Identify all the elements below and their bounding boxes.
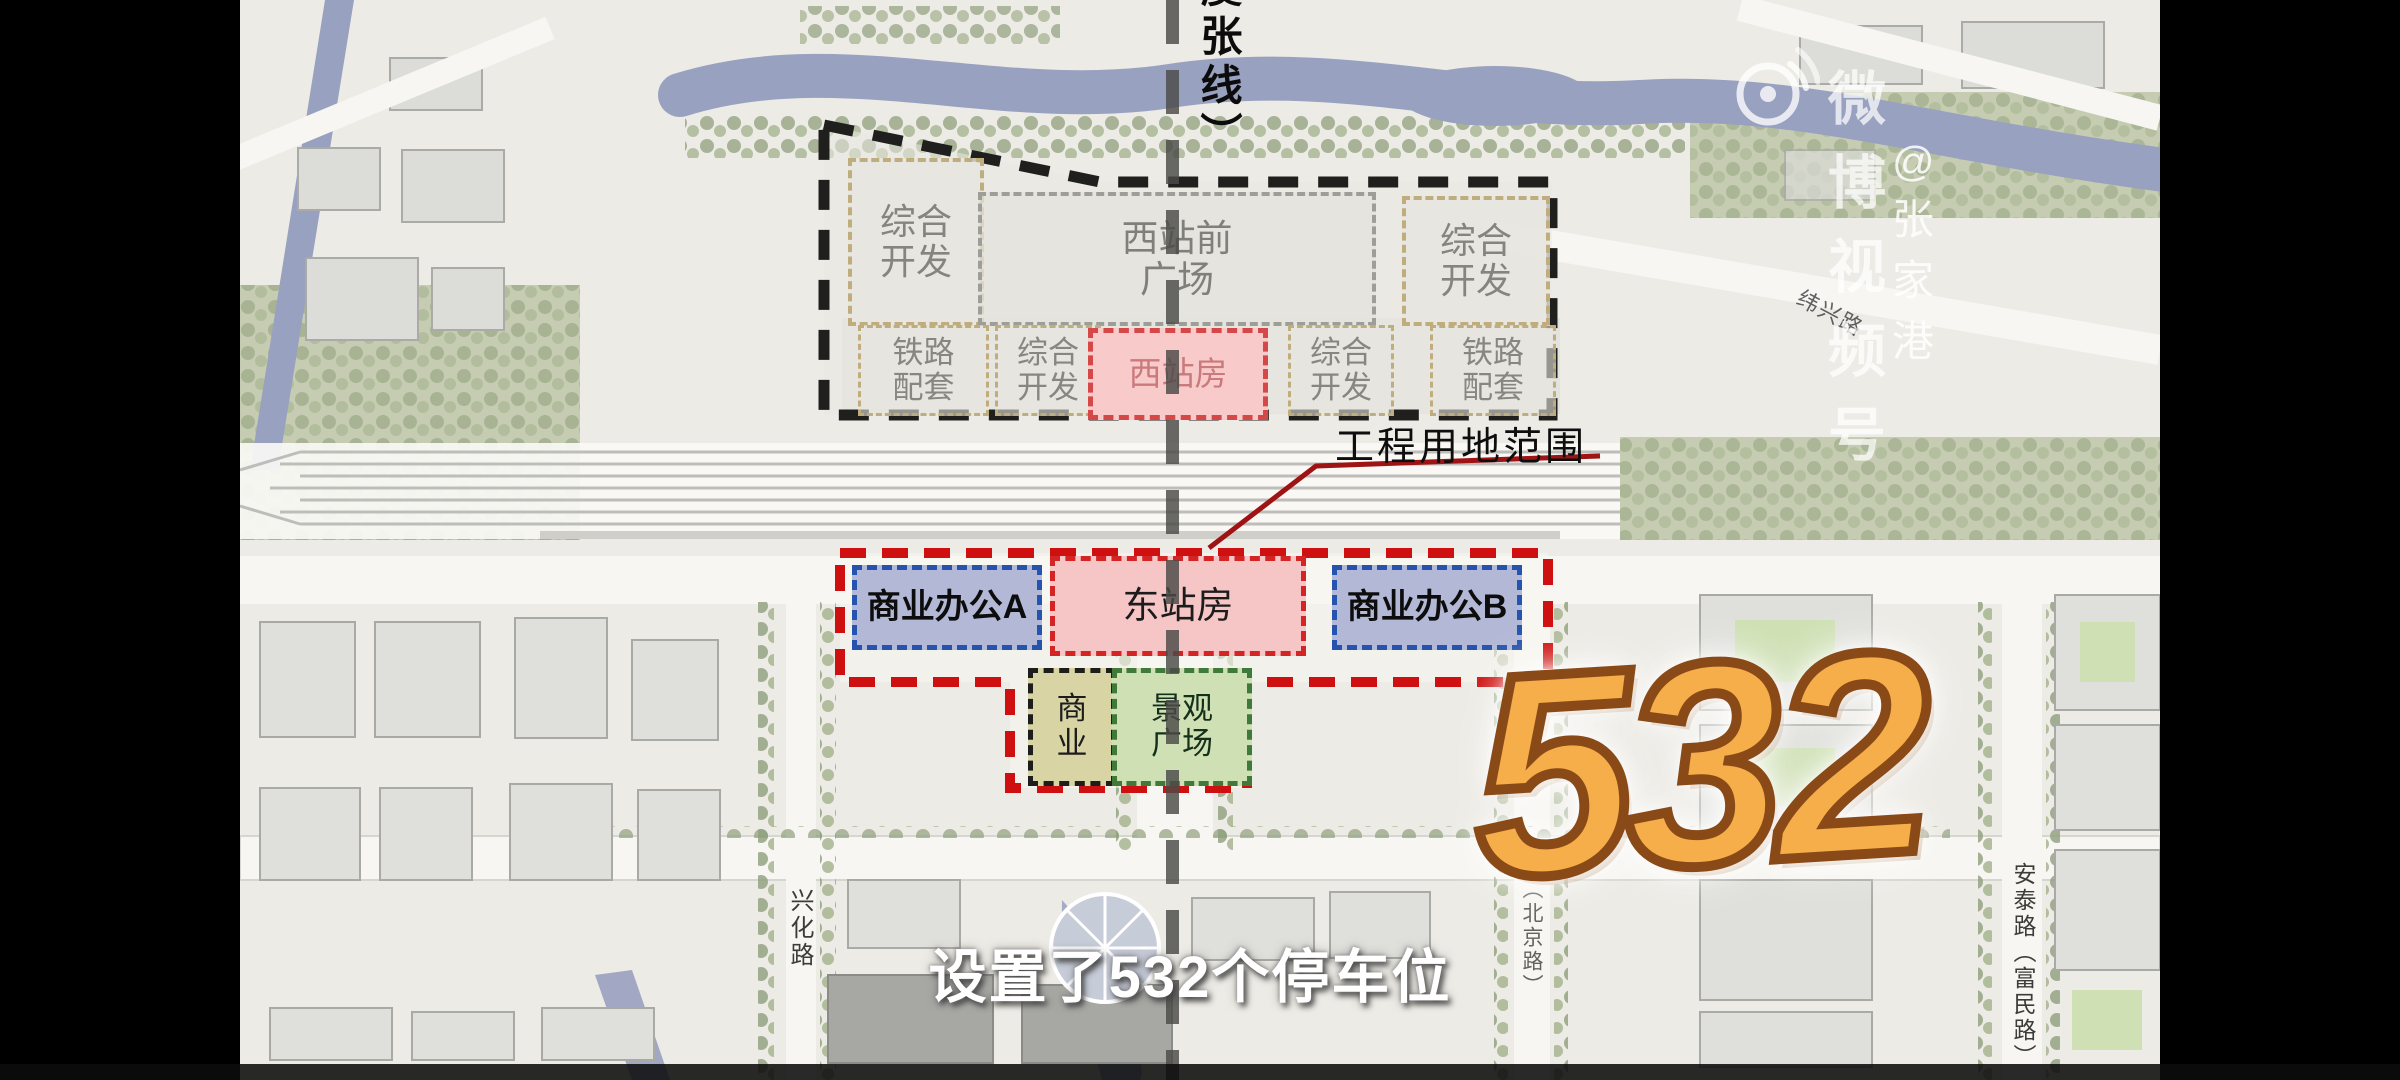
- zone-commerce: 商 业: [1028, 668, 1116, 786]
- watermark-brand: 微博视频号: [1828, 52, 1891, 472]
- big-number-532: 532: [1349, 580, 2048, 952]
- watermark-handle: @张家港: [1892, 138, 1935, 369]
- weibo-video-eye-icon: [1724, 42, 1820, 138]
- letterbox-right: [2160, 0, 2400, 1080]
- subtitle-caption: 设置了532个停车位: [830, 930, 1550, 1014]
- zone-landscape-plaza: 景观 广场: [1112, 668, 1252, 786]
- road-label-xinghua: 兴化路: [782, 888, 817, 969]
- zone-dev-mid-right: 综合 开发: [1288, 325, 1394, 416]
- zone-dev-top-left: 综合 开发: [848, 158, 984, 326]
- zone-rail-support-right: 铁路 配套: [1430, 325, 1556, 416]
- railway-centerline: [1166, 0, 1179, 1080]
- video-frame: 综合 开发 西站前 广场 综合 开发 铁路 配套 综合 开发 西站房 综合 开发…: [0, 0, 2400, 1080]
- zone-office-a: 商业办公A: [852, 565, 1042, 650]
- project-area-callout: 工程用地范围: [1335, 416, 1587, 472]
- zone-rail-support-left: 铁路 配套: [858, 325, 989, 416]
- rail-line-name: （虞张线）: [1188, 0, 1249, 161]
- map-canvas: 综合 开发 西站前 广场 综合 开发 铁路 配套 综合 开发 西站房 综合 开发…: [240, 0, 2160, 1080]
- bottom-dark-strip: [0, 1064, 2400, 1080]
- zone-dev-top-right: 综合 开发: [1402, 196, 1550, 326]
- letterbox-left: [0, 0, 240, 1080]
- zone-dev-mid-left: 综合 开发: [995, 325, 1101, 416]
